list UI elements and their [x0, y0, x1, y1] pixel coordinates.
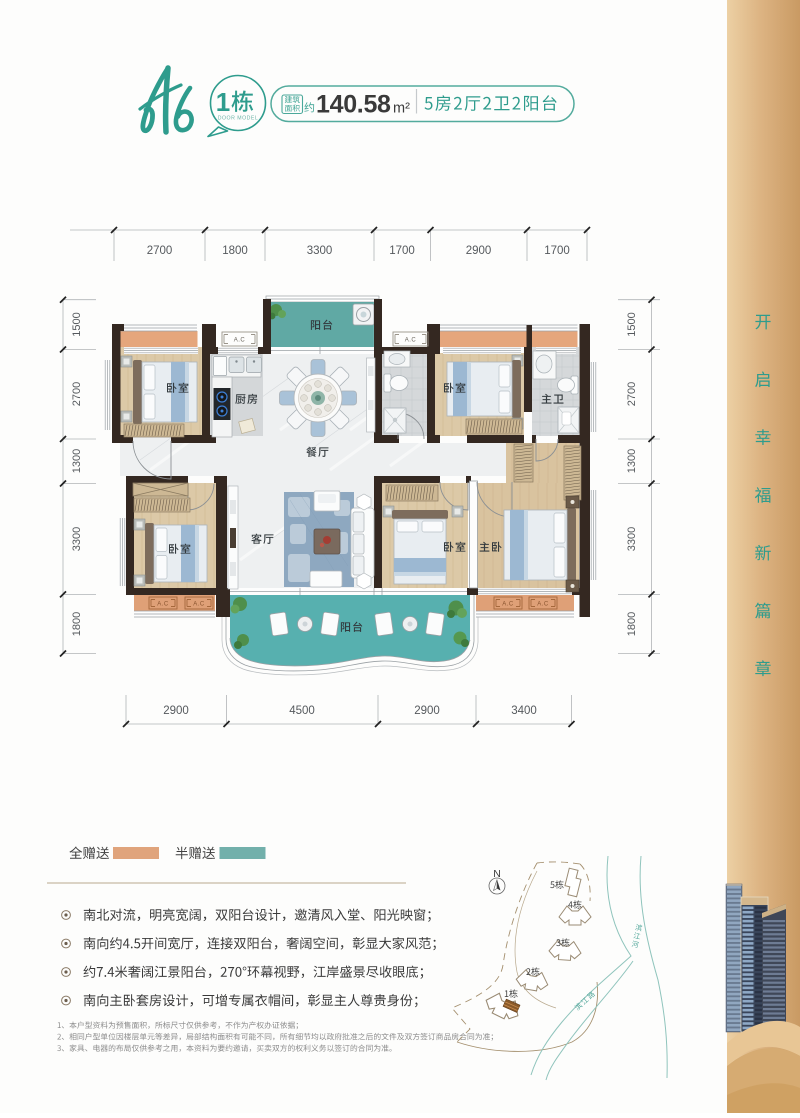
svg-text:4500: 4500 [289, 705, 315, 717]
svg-text:2700: 2700 [147, 245, 173, 257]
svg-text:3300: 3300 [626, 527, 638, 551]
svg-text:A.C: A.C [193, 602, 205, 608]
svg-text:A.C: A.C [234, 338, 246, 344]
svg-text:A.C: A.C [502, 602, 514, 608]
svg-text:2700: 2700 [71, 382, 83, 406]
svg-text:1500: 1500 [626, 312, 638, 336]
svg-text:3400: 3400 [511, 705, 537, 717]
svg-text:1: 1 [216, 87, 230, 117]
svg-text:A.C: A.C [537, 602, 549, 608]
svg-text:DOOR MODEL: DOOR MODEL [218, 116, 258, 122]
svg-text:140.58: 140.58 [316, 91, 391, 119]
svg-text:1800: 1800 [71, 612, 83, 636]
svg-text:1800: 1800 [222, 245, 248, 257]
svg-text:1300: 1300 [71, 449, 83, 473]
svg-text:m²: m² [393, 101, 410, 117]
svg-text:1300: 1300 [626, 449, 638, 473]
svg-text:A.C: A.C [405, 338, 417, 344]
svg-text:2900: 2900 [163, 705, 189, 717]
svg-text:1700: 1700 [389, 245, 415, 257]
svg-text:1500: 1500 [71, 312, 83, 336]
svg-text:3300: 3300 [71, 527, 83, 551]
svg-text:2700: 2700 [626, 382, 638, 406]
svg-text:3300: 3300 [307, 245, 333, 257]
svg-text:A.C: A.C [157, 602, 169, 608]
svg-text:2900: 2900 [466, 245, 492, 257]
svg-text:2900: 2900 [414, 705, 440, 717]
svg-text:1800: 1800 [626, 612, 638, 636]
svg-text:1700: 1700 [544, 245, 570, 257]
